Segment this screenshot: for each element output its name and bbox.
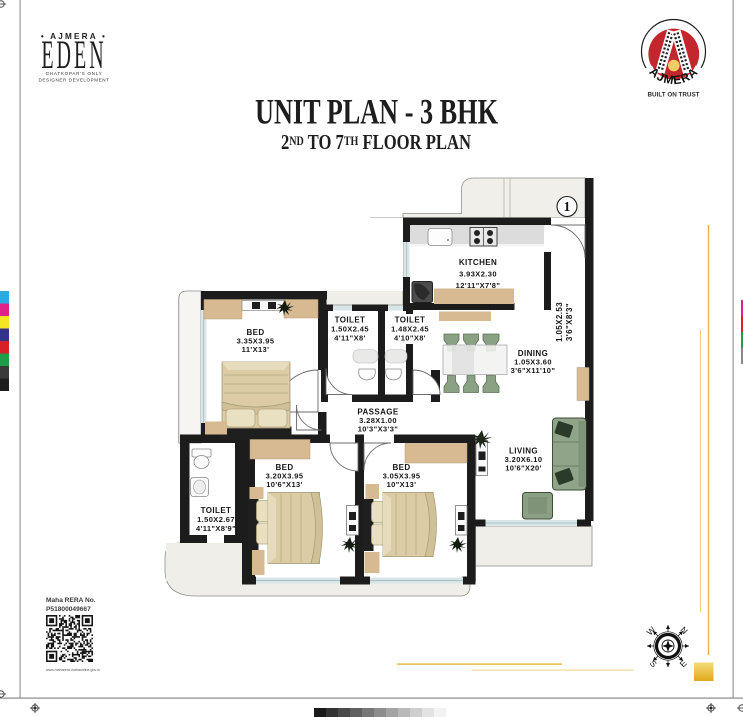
svg-text:BUILT ON TRUST: BUILT ON TRUST bbox=[648, 92, 700, 99]
svg-text:UNIT PLAN - 3 BHK: UNIT PLAN - 3 BHK bbox=[255, 92, 498, 132]
svg-text:TOILET: TOILET bbox=[395, 316, 426, 325]
svg-text:1.05X2.53: 1.05X2.53 bbox=[555, 302, 564, 342]
svg-text:10'3"X3'3": 10'3"X3'3" bbox=[358, 425, 399, 434]
svg-text:2ND TO 7TH FLOOR PLAN: 2ND TO 7TH FLOOR PLAN bbox=[281, 130, 471, 154]
svg-text:1: 1 bbox=[564, 199, 571, 214]
svg-text:4'11"X8': 4'11"X8' bbox=[334, 334, 366, 343]
svg-text:TOILET: TOILET bbox=[335, 316, 366, 325]
svg-text:1.50X2.45: 1.50X2.45 bbox=[331, 325, 369, 334]
svg-text:10"X13': 10"X13' bbox=[387, 480, 417, 489]
svg-text:www.maharera.mahaonline.gov.in: www.maharera.mahaonline.gov.in bbox=[46, 668, 100, 672]
svg-text:3'6"X8'3": 3'6"X8'3" bbox=[565, 303, 574, 341]
svg-text:GHATKOPAR'S ONLY: GHATKOPAR'S ONLY bbox=[46, 71, 103, 76]
svg-text:12'11"X7'8": 12'11"X7'8" bbox=[456, 281, 501, 290]
svg-text:P51800049667: P51800049667 bbox=[46, 606, 91, 613]
svg-text:Maha RERA No.: Maha RERA No. bbox=[46, 597, 96, 604]
svg-text:11'X13': 11'X13' bbox=[242, 345, 270, 354]
svg-text:1.50X2.67: 1.50X2.67 bbox=[197, 515, 235, 524]
svg-text:10'6"X20': 10'6"X20' bbox=[505, 464, 542, 473]
svg-text:4'11"X8'9": 4'11"X8'9" bbox=[196, 524, 236, 533]
svg-text:KITCHEN: KITCHEN bbox=[459, 258, 497, 267]
svg-text:TOILET: TOILET bbox=[201, 506, 232, 515]
svg-text:4'10"X8': 4'10"X8' bbox=[394, 334, 426, 343]
svg-text:10'6"X13': 10'6"X13' bbox=[266, 480, 303, 489]
svg-text:1.48X2.45: 1.48X2.45 bbox=[391, 325, 429, 334]
svg-text:DESIGNER DEVELOPMENT: DESIGNER DEVELOPMENT bbox=[39, 78, 110, 83]
svg-text:3.93X2.30: 3.93X2.30 bbox=[459, 270, 497, 279]
svg-text:3'6"X11'10": 3'6"X11'10" bbox=[511, 366, 556, 375]
